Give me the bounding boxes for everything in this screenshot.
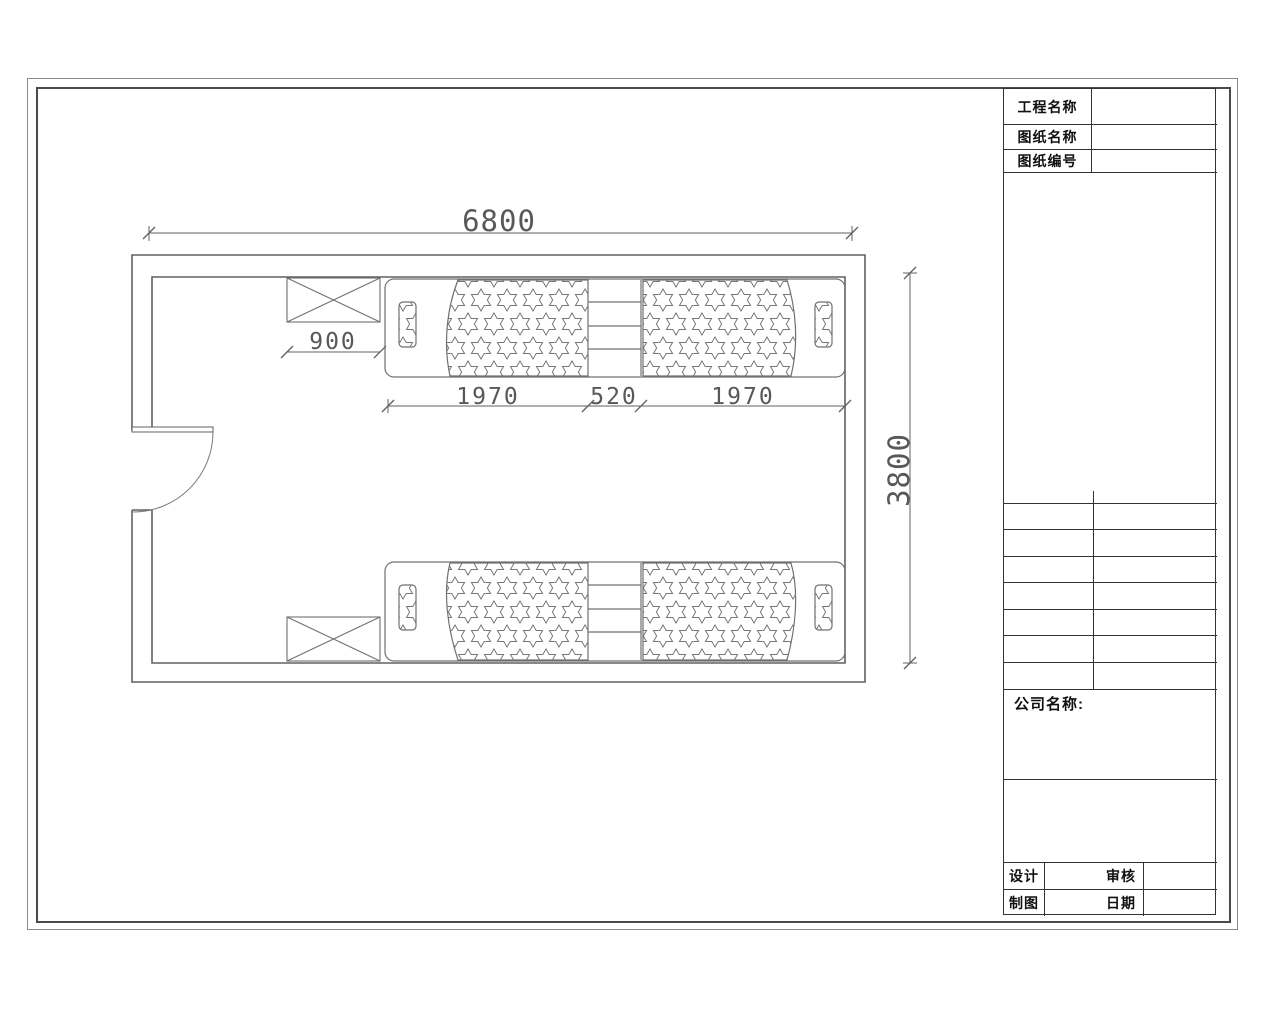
tb-line (1004, 779, 1217, 780)
nightstand-bottom (287, 617, 380, 661)
door (132, 427, 213, 512)
dim-ladder: 520 (564, 384, 664, 410)
tb-line (1004, 635, 1217, 636)
door-leaf (132, 427, 213, 432)
tb-line (1044, 862, 1045, 916)
pillow-left (399, 585, 416, 630)
dim-cabinet: 900 (293, 329, 373, 355)
tb-line (1093, 491, 1094, 689)
tb-line (1004, 529, 1217, 530)
draft-label: 制图 (1004, 889, 1044, 916)
pillow-right (815, 302, 832, 347)
check-label: 审核 (1064, 862, 1136, 889)
dim-bed-left: 1970 (428, 384, 548, 410)
pillow-left (399, 302, 416, 347)
dim-room-width: 6800 (439, 204, 559, 238)
tb-line (1143, 862, 1144, 916)
tb-line (1004, 172, 1217, 173)
design-label: 设计 (1004, 862, 1044, 889)
ladder (588, 280, 641, 376)
mattress-left (447, 563, 588, 660)
drawing-name-label: 图纸名称 (1004, 124, 1091, 149)
tb-line (1004, 556, 1217, 557)
bed-top (385, 279, 845, 377)
company-name-label: 公司名称: (1014, 689, 1204, 717)
project-name-label: 工程名称 (1004, 89, 1091, 124)
mattress-right (643, 280, 796, 376)
tb-line (1091, 89, 1092, 172)
date-label: 日期 (1064, 889, 1136, 916)
tb-line (1004, 609, 1217, 610)
dim-bed-right: 1970 (683, 384, 803, 410)
tb-line (1004, 582, 1217, 583)
dim-room-depth: 3800 (882, 410, 916, 530)
ladder (588, 563, 641, 660)
tb-line (1004, 662, 1217, 663)
pillow-right (815, 585, 832, 630)
drawing-no-label: 图纸编号 (1004, 149, 1091, 172)
nightstand-top (287, 278, 380, 322)
tb-line (1004, 503, 1217, 504)
title-block: 工程名称 图纸名称 图纸编号 公司名称: 设计 制图 审核 日期 (1003, 88, 1216, 915)
mattress-right (643, 563, 796, 660)
mattress-left (447, 280, 588, 376)
bed-bottom (385, 562, 845, 661)
door-swing-arc (133, 432, 213, 512)
